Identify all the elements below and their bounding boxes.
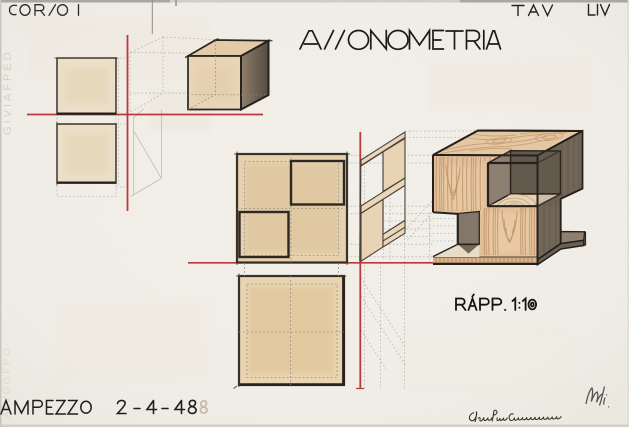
svg-text:GIVIAFPED: GIVIAFPED (2, 49, 14, 135)
